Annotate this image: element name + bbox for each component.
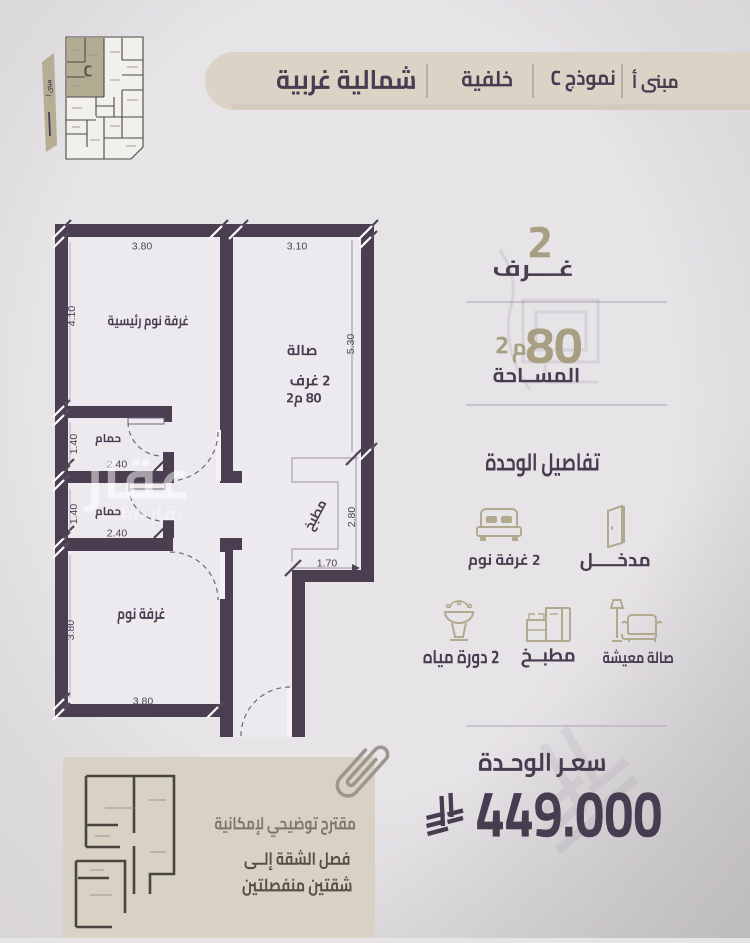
svg-text:2.40: 2.40	[107, 528, 128, 540]
svg-text:4.10: 4.10	[66, 306, 78, 327]
svg-text:3.10: 3.10	[287, 241, 308, 253]
svg-text:1.40: 1.40	[68, 434, 80, 455]
svg-text:3.80: 3.80	[65, 620, 77, 641]
svg-text:2.80: 2.80	[346, 507, 358, 528]
svg-text:3.80: 3.80	[132, 241, 153, 253]
svg-text:5.30: 5.30	[345, 334, 357, 355]
svg-text:1.40: 1.40	[68, 504, 80, 525]
svg-text:3.80: 3.80	[133, 696, 154, 708]
svg-text:1.70: 1.70	[317, 558, 338, 570]
